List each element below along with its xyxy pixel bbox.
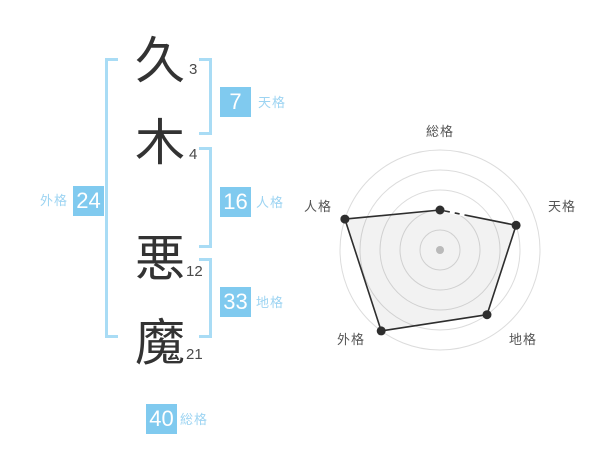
radar-axis-label-3: 外格 bbox=[337, 332, 365, 347]
radar-point-4 bbox=[340, 215, 349, 224]
radar-chart: 総格天格地格外格人格 bbox=[290, 100, 590, 400]
tenkaku-label: 天格 bbox=[258, 96, 286, 109]
tenkaku-badge: 7 bbox=[220, 87, 251, 117]
stroke-count-2: 4 bbox=[189, 147, 197, 162]
gaikaku-bracket bbox=[105, 58, 118, 338]
seimei-handan-result: 久 3 木 4 悪 12 魔 21 7 天格 16 人格 33 地格 外格 24… bbox=[0, 0, 600, 470]
radar-axis-label-4: 人格 bbox=[304, 199, 332, 214]
gaikaku-badge: 24 bbox=[73, 186, 104, 216]
radar-point-0 bbox=[436, 206, 445, 215]
radar-point-2 bbox=[483, 310, 492, 319]
name-char-2: 木 bbox=[128, 118, 192, 168]
name-char-3: 悪 bbox=[128, 234, 192, 284]
radar-point-1 bbox=[512, 221, 521, 230]
jinkaku-label: 人格 bbox=[256, 196, 284, 209]
soukaku-badge: 40 bbox=[146, 404, 177, 434]
name-char-4: 魔 bbox=[128, 318, 192, 368]
name-char-1: 久 bbox=[128, 36, 192, 86]
chikaku-label: 地格 bbox=[256, 296, 284, 309]
jinkaku-badge: 16 bbox=[220, 187, 251, 217]
stroke-count-1: 3 bbox=[189, 62, 197, 77]
tenkaku-bracket bbox=[199, 58, 212, 135]
stroke-count-3: 12 bbox=[186, 264, 203, 279]
jinkaku-bracket bbox=[199, 147, 212, 248]
radar-axis-label-1: 天格 bbox=[548, 199, 576, 214]
radar-axis-label-2: 地格 bbox=[509, 332, 537, 347]
radar-point-3 bbox=[377, 326, 386, 335]
chikaku-badge: 33 bbox=[220, 287, 251, 317]
soukaku-label: 総格 bbox=[180, 413, 208, 426]
stroke-count-4: 21 bbox=[186, 347, 203, 362]
radar-axis-label-0: 総格 bbox=[426, 124, 454, 139]
gaikaku-label: 外格 bbox=[40, 194, 68, 207]
